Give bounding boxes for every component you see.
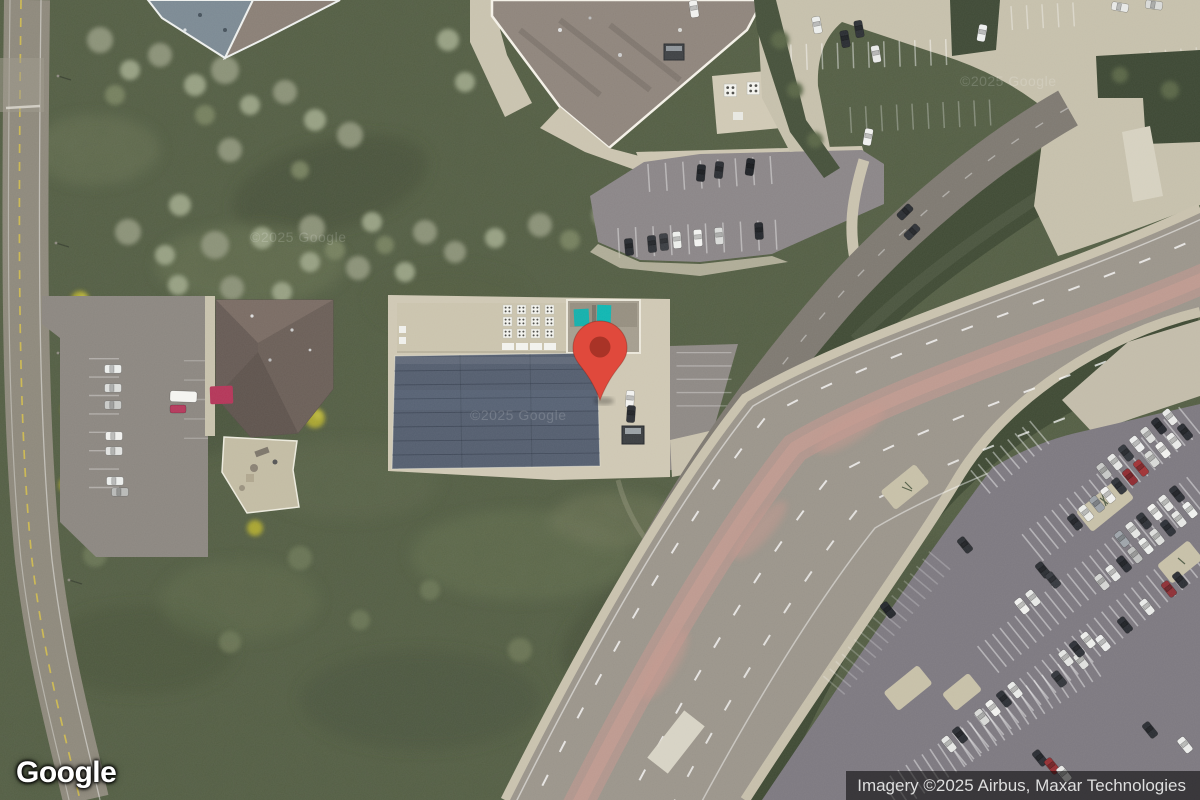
map-canvas[interactable]: ©2025 Google ©2025 Google ©2025 Google G… <box>0 0 1200 800</box>
attribution-bar: Imagery ©2025 Airbus, Maxar Technologies <box>846 771 1200 800</box>
location-pin-dot <box>590 337 611 358</box>
satellite-imagery: ©2025 Google ©2025 Google ©2025 Google <box>0 0 1200 800</box>
attribution-text: Imagery ©2025 Airbus, Maxar Technologies <box>857 776 1186 795</box>
pin-shadow <box>594 397 614 405</box>
google-logo[interactable]: Google <box>16 756 116 790</box>
